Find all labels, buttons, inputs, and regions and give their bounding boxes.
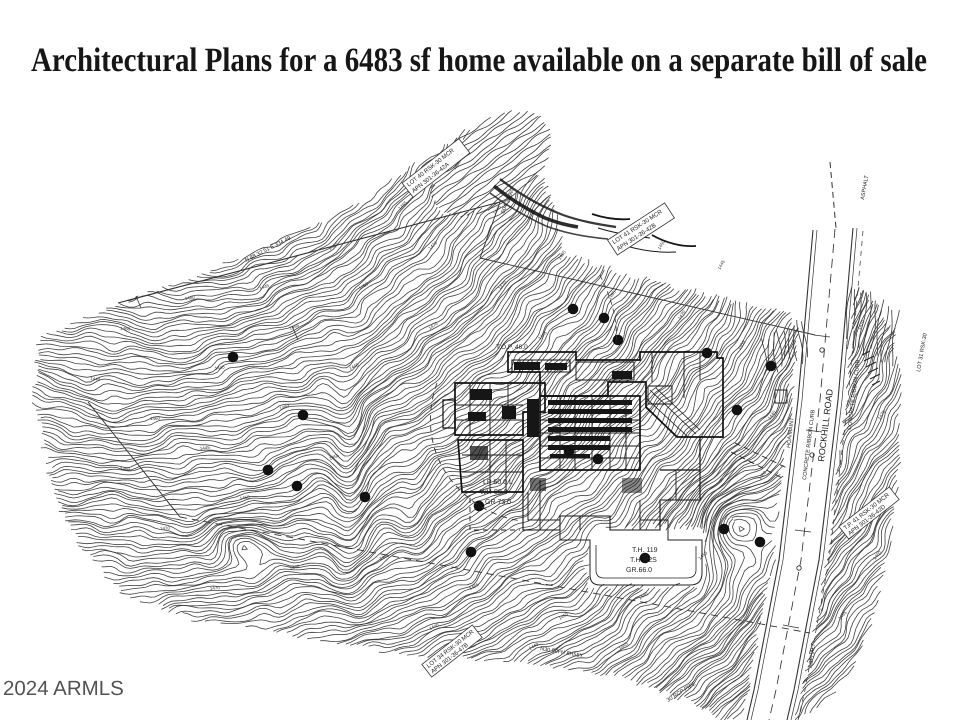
svg-text:T.H. 119: T.H. 119 bbox=[632, 547, 658, 554]
svg-text:1470: 1470 bbox=[210, 585, 221, 591]
svg-text:1460: 1460 bbox=[120, 466, 131, 471]
svg-text:T.H. 72S: T.H. 72S bbox=[630, 557, 657, 564]
svg-text:WH-50.0: WH-50.0 bbox=[480, 489, 508, 496]
svg-text:1470: 1470 bbox=[160, 526, 171, 531]
svg-text:GR 73.0: GR 73.0 bbox=[485, 499, 511, 506]
svg-text:1460: 1460 bbox=[279, 403, 291, 411]
svg-text:1455: 1455 bbox=[737, 339, 747, 351]
svg-text:1465: 1465 bbox=[468, 582, 480, 591]
svg-text:1460: 1460 bbox=[185, 295, 196, 301]
svg-text:1450: 1450 bbox=[697, 550, 708, 561]
svg-text:LP 60.0 L: LP 60.0 L bbox=[483, 479, 513, 486]
svg-text:ASPHALT: ASPHALT bbox=[860, 174, 870, 200]
svg-text:1450: 1450 bbox=[239, 494, 250, 501]
svg-text:1445: 1445 bbox=[717, 259, 727, 271]
svg-text:T.O.P. 46.0: T.O.P. 46.0 bbox=[496, 344, 528, 351]
svg-text:LOT 31 RSK-30: LOT 31 RSK-30 bbox=[916, 333, 929, 372]
svg-text:1460: 1460 bbox=[120, 326, 131, 332]
svg-text:1445: 1445 bbox=[379, 552, 391, 560]
svg-text:1465: 1465 bbox=[557, 249, 567, 260]
svg-text:1460: 1460 bbox=[872, 549, 883, 560]
svg-text:1445: 1445 bbox=[214, 364, 225, 371]
svg-text:1470: 1470 bbox=[497, 280, 508, 291]
svg-text:1470: 1470 bbox=[427, 240, 438, 251]
svg-text:ASPHALT: ASPHALT bbox=[808, 642, 817, 668]
svg-text:GR.66.0: GR.66.0 bbox=[626, 567, 652, 574]
svg-text:1460: 1460 bbox=[150, 416, 161, 421]
